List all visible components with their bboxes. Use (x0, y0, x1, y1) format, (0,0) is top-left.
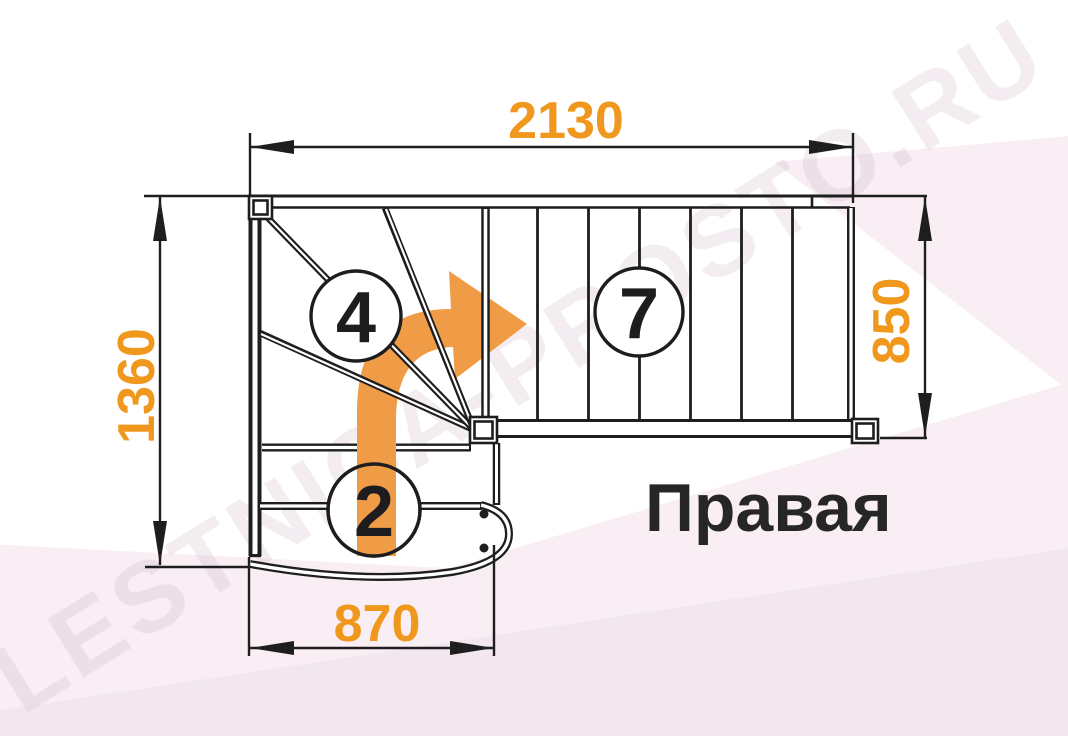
dim-value-top-width: 2130 (508, 92, 624, 150)
stair-orientation-label: Правая (645, 470, 892, 546)
stair-plan-drawing: 4 7 2 (0, 0, 1068, 736)
baluster-dot-1 (480, 510, 489, 519)
dim-value-bottom-width: 870 (334, 595, 421, 653)
dim-value-right-height: 850 (863, 278, 921, 365)
winder-step-count: 4 (336, 278, 376, 358)
upper-flight-step-count: 7 (619, 274, 659, 354)
baluster-dot-2 (480, 544, 489, 553)
dim-value-left-height: 1360 (108, 328, 166, 444)
stair-plan-canvas: LESTNICA-PROSTO.RU (0, 0, 1068, 736)
lower-flight-step-count: 2 (354, 472, 394, 552)
